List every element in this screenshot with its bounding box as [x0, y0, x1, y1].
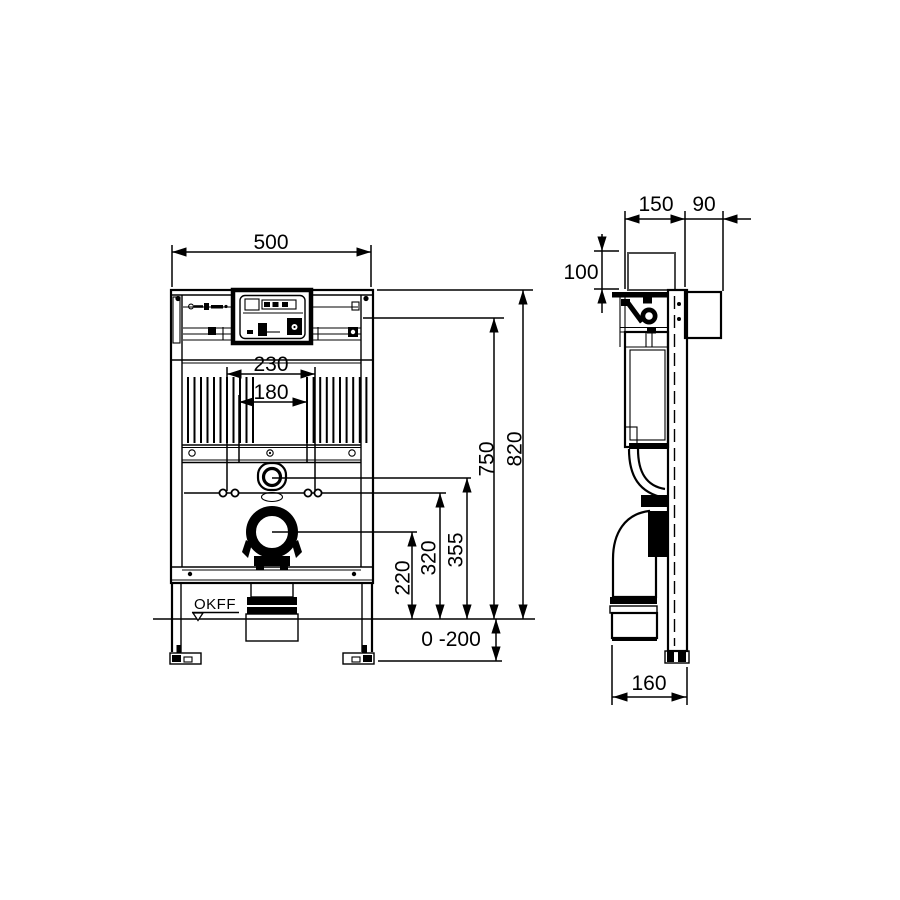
- floor-level: OKFF: [153, 596, 535, 621]
- dim-front-width-label: 500: [253, 231, 288, 254]
- dim-leg-adjustment: 0 -200: [378, 619, 502, 661]
- inspection-box: [233, 290, 311, 343]
- wall-bracket-box: [685, 292, 721, 338]
- mounting-rail: [665, 290, 689, 663]
- dim-fixing-inner: 180: [239, 381, 307, 462]
- dim-front-width: 500: [172, 231, 371, 287]
- dim-frame-depth-label: 150: [638, 193, 673, 216]
- dim-wall-bracket-depth-label: 90: [692, 193, 715, 216]
- front-view: OKFF 500 230 18: [153, 231, 535, 664]
- installation-drawing-canvas: OKFF 500 230 18: [0, 0, 900, 900]
- dim-fixing-outer-label: 230: [253, 353, 288, 376]
- dim-top-clearance: 100: [563, 234, 619, 313]
- dim-fixing-height-label: 320: [417, 540, 440, 575]
- drawing-page: OKFF 500 230 18: [0, 0, 900, 900]
- dim-flush-bend-height-label: 355: [444, 532, 467, 567]
- cistern-side: [612, 292, 681, 449]
- dim-drain-outlet-depth-label: 160: [631, 672, 666, 695]
- floor-level-label: OKFF: [194, 596, 236, 613]
- side-view: 150 90 100 160: [563, 193, 751, 705]
- drain-elbow-side: [610, 511, 669, 641]
- dim-vertical-stack: 220 320 355 750 820: [363, 290, 533, 619]
- dim-fixing-inner-label: 180: [253, 381, 288, 404]
- dim-upper-leader-height-label: 750: [475, 441, 498, 476]
- flush-pipe-side: [629, 449, 668, 507]
- dim-top-clearance-label: 100: [563, 261, 598, 284]
- flush-bend: [258, 463, 471, 502]
- dim-drain-height-label: 220: [391, 560, 414, 595]
- dim-total-height-label: 820: [503, 431, 526, 466]
- top-clearance-box: [628, 253, 675, 290]
- middle-rail: [182, 445, 361, 463]
- dim-drain-outlet-depth: 160: [612, 645, 687, 705]
- dim-side-depths: 150 90: [625, 193, 751, 291]
- dim-leg-adjustment-label: 0 -200: [421, 628, 481, 651]
